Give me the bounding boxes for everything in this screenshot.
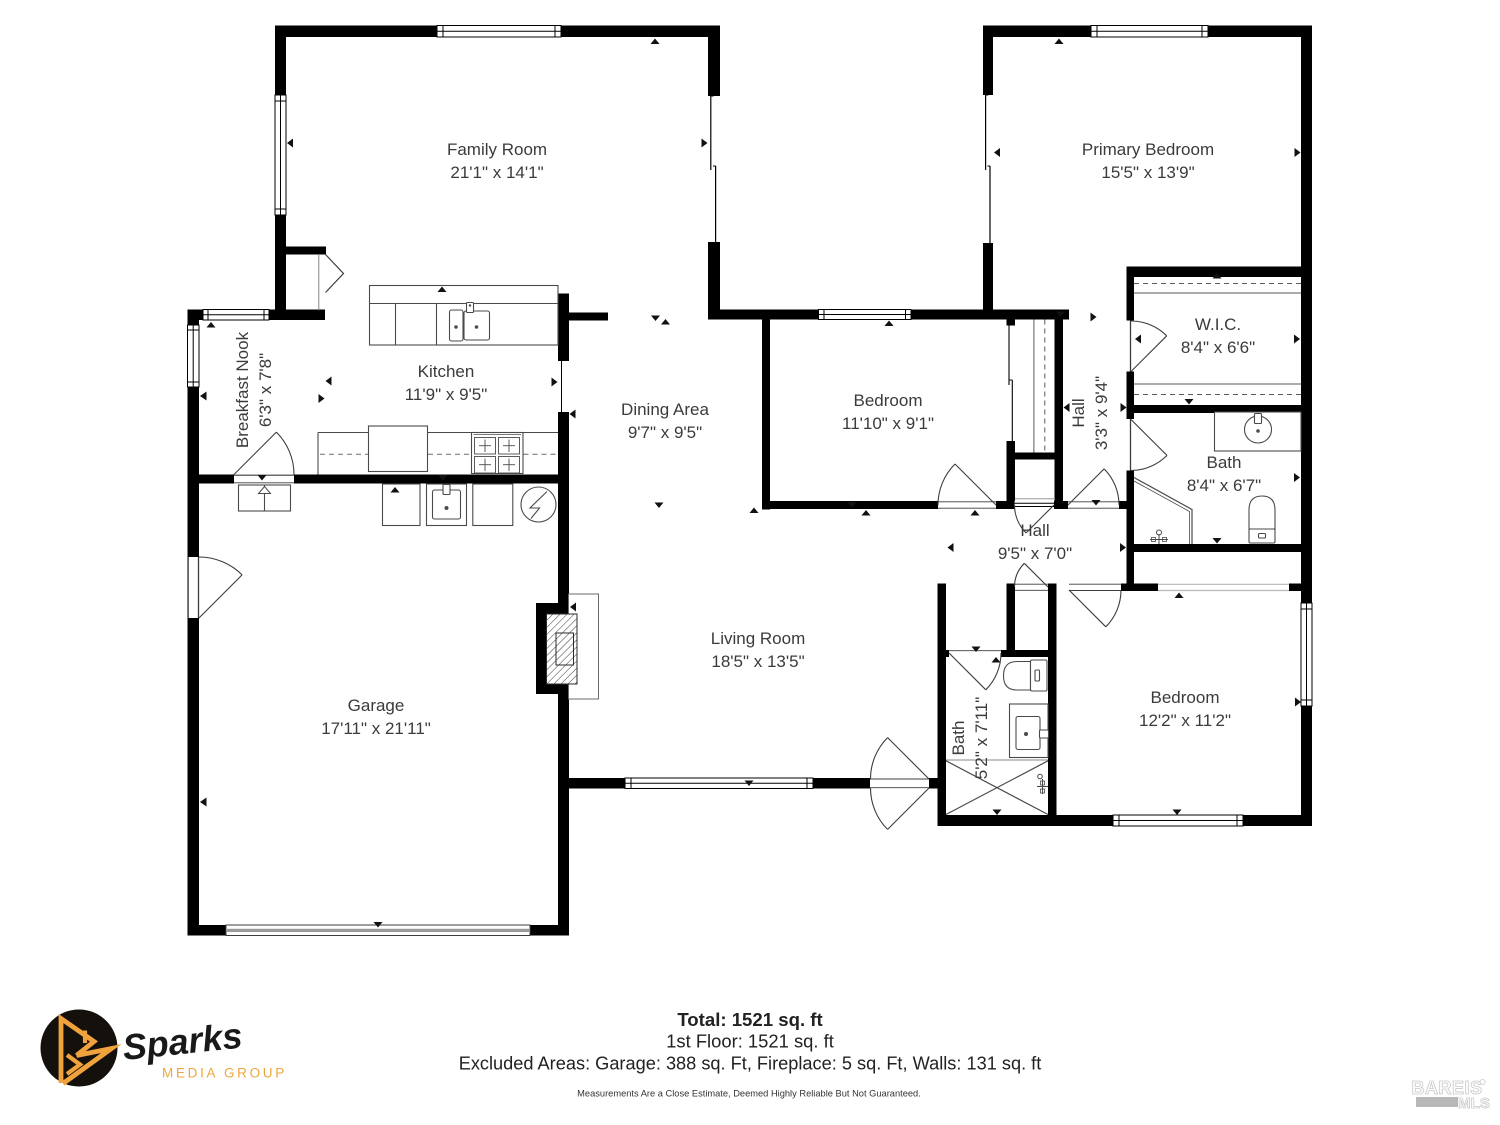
svg-text:9'5" x 7'0": 9'5" x 7'0"	[998, 544, 1072, 563]
svg-text:9'7" x 9'5": 9'7" x 9'5"	[628, 423, 702, 442]
svg-text:Hall: Hall	[1020, 521, 1049, 540]
svg-text:17'11" x 21'11": 17'11" x 21'11"	[321, 719, 431, 738]
svg-text:Family Room: Family Room	[447, 140, 547, 159]
svg-text:11'10" x 9'1": 11'10" x 9'1"	[842, 414, 934, 433]
svg-text:11'9" x 9'5": 11'9" x 9'5"	[405, 385, 488, 404]
svg-text:Bath: Bath	[1207, 453, 1242, 472]
svg-text:MLS: MLS	[1458, 1095, 1490, 1112]
svg-text:Total: 1521 sq. ft: Total: 1521 sq. ft	[677, 1009, 822, 1030]
svg-text:Measurements Are a Close Estim: Measurements Are a Close Estimate, Deeme…	[577, 1089, 921, 1099]
svg-text:6'3" x 7'8": 6'3" x 7'8"	[256, 353, 275, 427]
svg-text:8'4" x 6'7": 8'4" x 6'7"	[1187, 476, 1261, 495]
svg-text:18'5" x 13'5": 18'5" x 13'5"	[711, 652, 804, 671]
svg-text:8'4" x 6'6": 8'4" x 6'6"	[1181, 338, 1255, 357]
svg-text:5'2" x 7'11": 5'2" x 7'11"	[972, 697, 991, 780]
svg-text:Bath: Bath	[949, 721, 968, 756]
svg-text:Excluded Areas: Garage: 388 sq: Excluded Areas: Garage: 388 sq. Ft, Fire…	[459, 1054, 1042, 1074]
svg-text:Hall: Hall	[1069, 398, 1088, 427]
svg-text:Garage: Garage	[348, 696, 405, 715]
svg-text:15'5" x 13'9": 15'5" x 13'9"	[1101, 163, 1194, 182]
svg-text:Kitchen: Kitchen	[418, 362, 475, 381]
svg-text:MEDIA GROUP: MEDIA GROUP	[162, 1066, 287, 1081]
svg-text:1st Floor: 1521 sq. ft: 1st Floor: 1521 sq. ft	[666, 1031, 834, 1052]
svg-text:Primary Bedroom: Primary Bedroom	[1082, 140, 1214, 159]
svg-text:Bedroom: Bedroom	[1151, 688, 1220, 707]
svg-text:Dining Area: Dining Area	[621, 400, 709, 419]
svg-text:21'1" x 14'1": 21'1" x 14'1"	[450, 163, 543, 182]
svg-text:Living Room: Living Room	[711, 629, 806, 648]
svg-text:Breakfast Nook: Breakfast Nook	[233, 331, 252, 448]
svg-text:3'3" x 9'4": 3'3" x 9'4"	[1092, 376, 1111, 450]
svg-text:W.I.C.: W.I.C.	[1195, 315, 1241, 334]
svg-text:Bedroom: Bedroom	[854, 391, 923, 410]
svg-text:12'2" x 11'2": 12'2" x 11'2"	[1139, 711, 1231, 730]
